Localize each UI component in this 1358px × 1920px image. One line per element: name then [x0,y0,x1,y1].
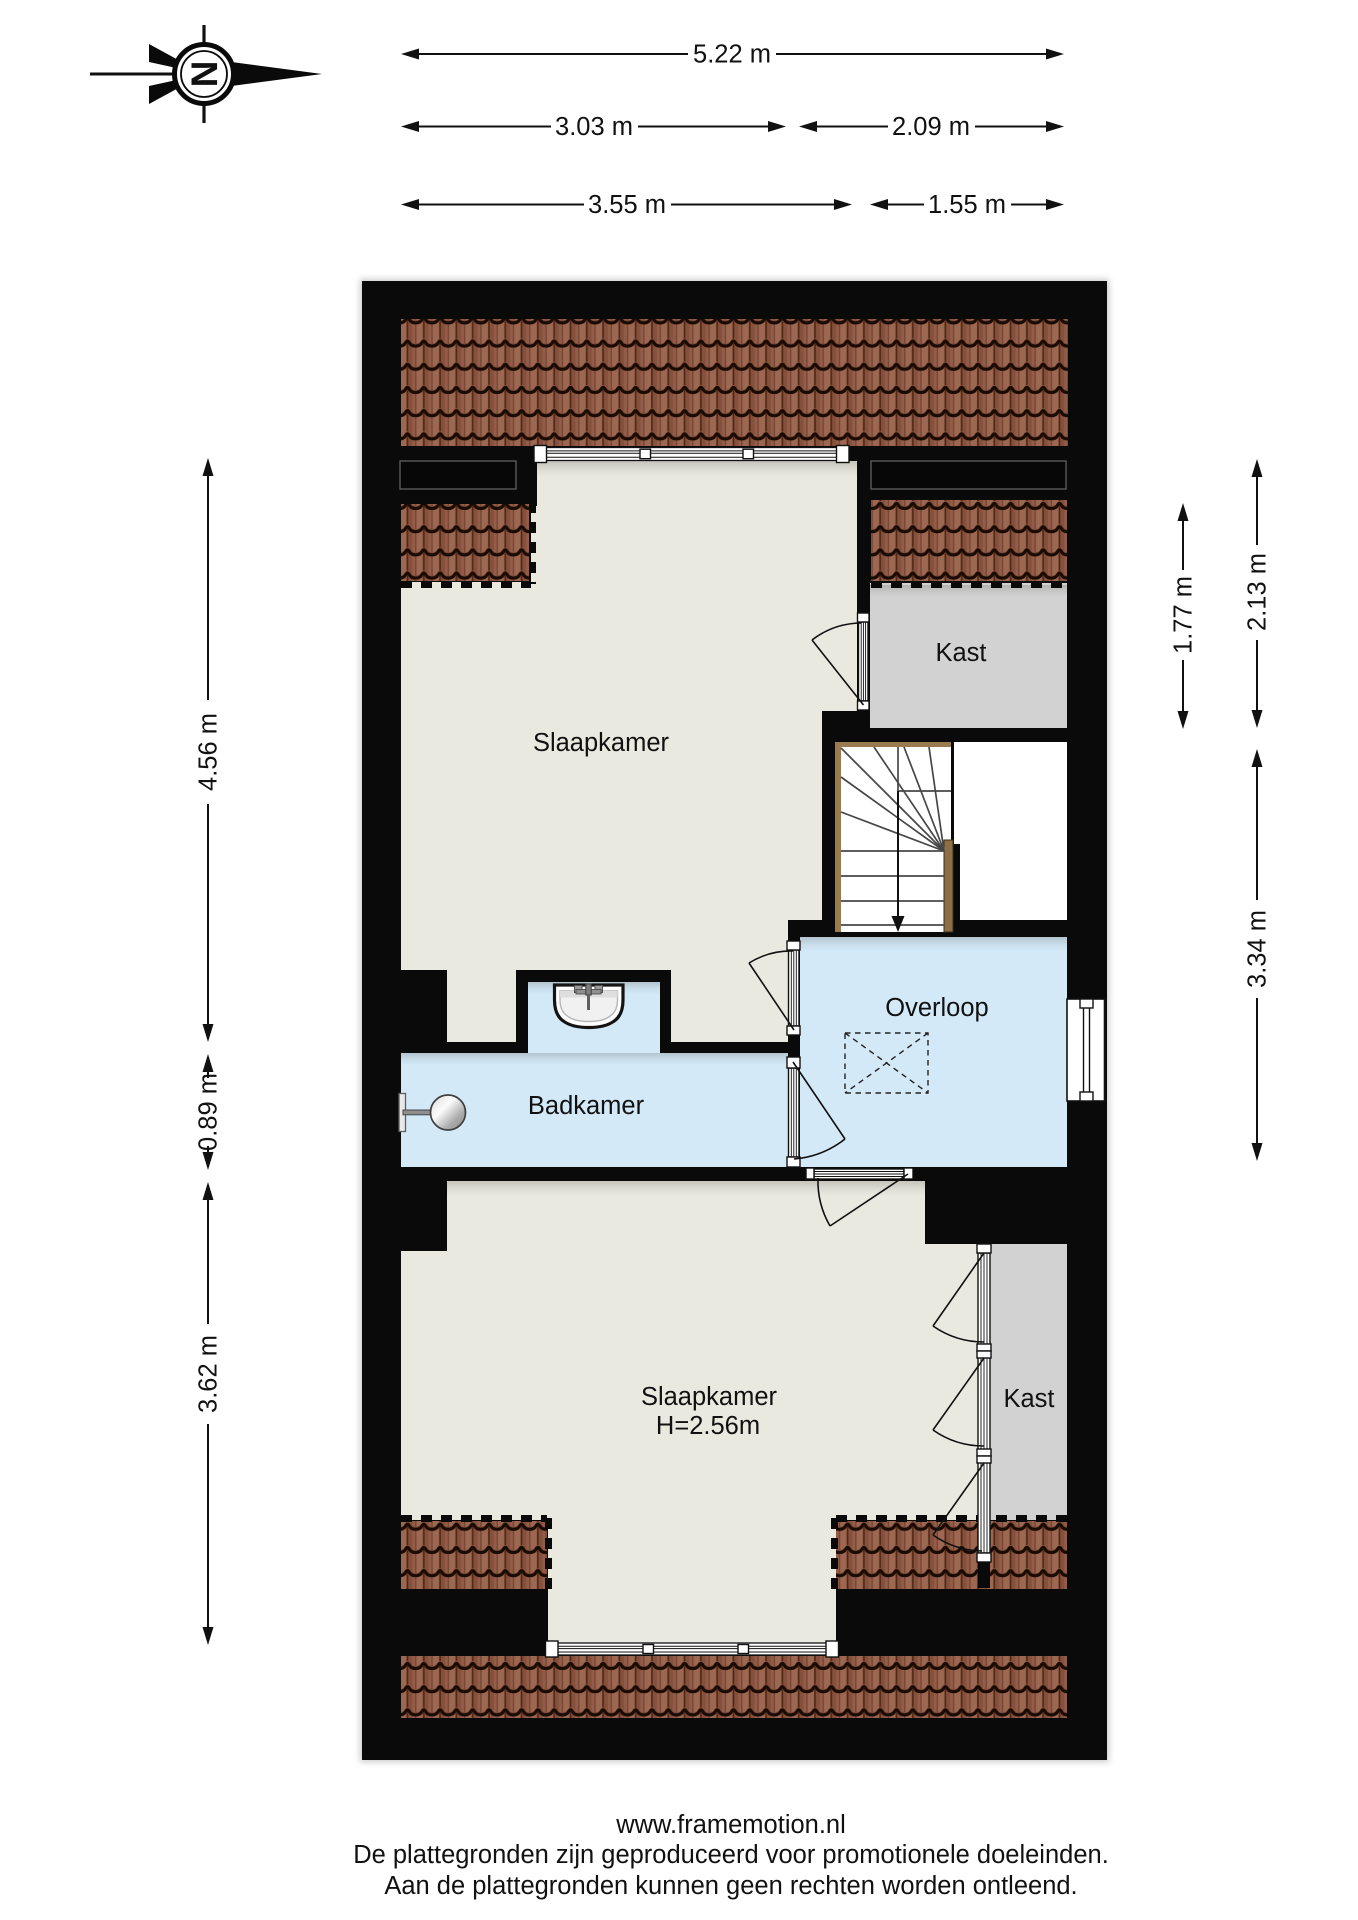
svg-text:N: N [184,61,225,88]
svg-text:Badkamer: Badkamer [528,1092,645,1120]
svg-text:0.89 m: 0.89 m [195,1073,223,1151]
svg-text:www.framemotion.nl: www.framemotion.nl [615,1811,846,1839]
svg-text:1.77 m: 1.77 m [1170,576,1198,654]
svg-text:5.22 m: 5.22 m [693,41,771,69]
svg-text:2.09 m: 2.09 m [892,113,970,141]
svg-text:Kast: Kast [1003,1385,1054,1413]
svg-text:3.55 m: 3.55 m [588,191,666,219]
svg-text:H=2.56m: H=2.56m [656,1412,760,1440]
svg-text:3.62 m: 3.62 m [195,1335,223,1413]
svg-text:3.03 m: 3.03 m [555,113,633,141]
svg-text:2.13 m: 2.13 m [1244,553,1272,631]
svg-text:Kast: Kast [935,639,986,667]
svg-text:1.55 m: 1.55 m [928,191,1006,219]
svg-text:Slaapkamer: Slaapkamer [533,729,670,757]
svg-text:4.56 m: 4.56 m [195,713,223,791]
svg-text:Slaapkamer: Slaapkamer [641,1383,778,1411]
svg-text:Aan de plattegronden kunnen ge: Aan de plattegronden kunnen geen rechten… [384,1872,1077,1900]
svg-text:De plattegronden zijn geproduc: De plattegronden zijn geproduceerd voor … [353,1841,1109,1869]
svg-text:3.34 m: 3.34 m [1244,910,1272,988]
svg-text:Overloop: Overloop [885,994,988,1022]
